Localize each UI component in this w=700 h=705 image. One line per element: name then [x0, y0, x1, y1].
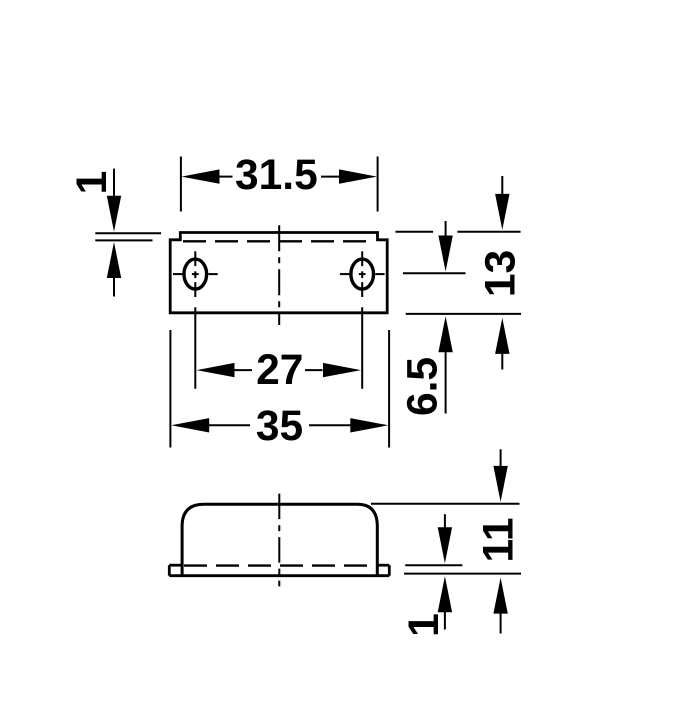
svg-text:1: 1 [69, 171, 116, 195]
svg-text:11: 11 [476, 518, 523, 563]
svg-text:31.5: 31.5 [235, 152, 318, 199]
svg-text:27: 27 [256, 347, 303, 394]
svg-text:6.5: 6.5 [400, 357, 447, 416]
svg-text:35: 35 [256, 403, 303, 450]
svg-text:1: 1 [401, 613, 448, 637]
svg-text:13: 13 [478, 250, 525, 297]
